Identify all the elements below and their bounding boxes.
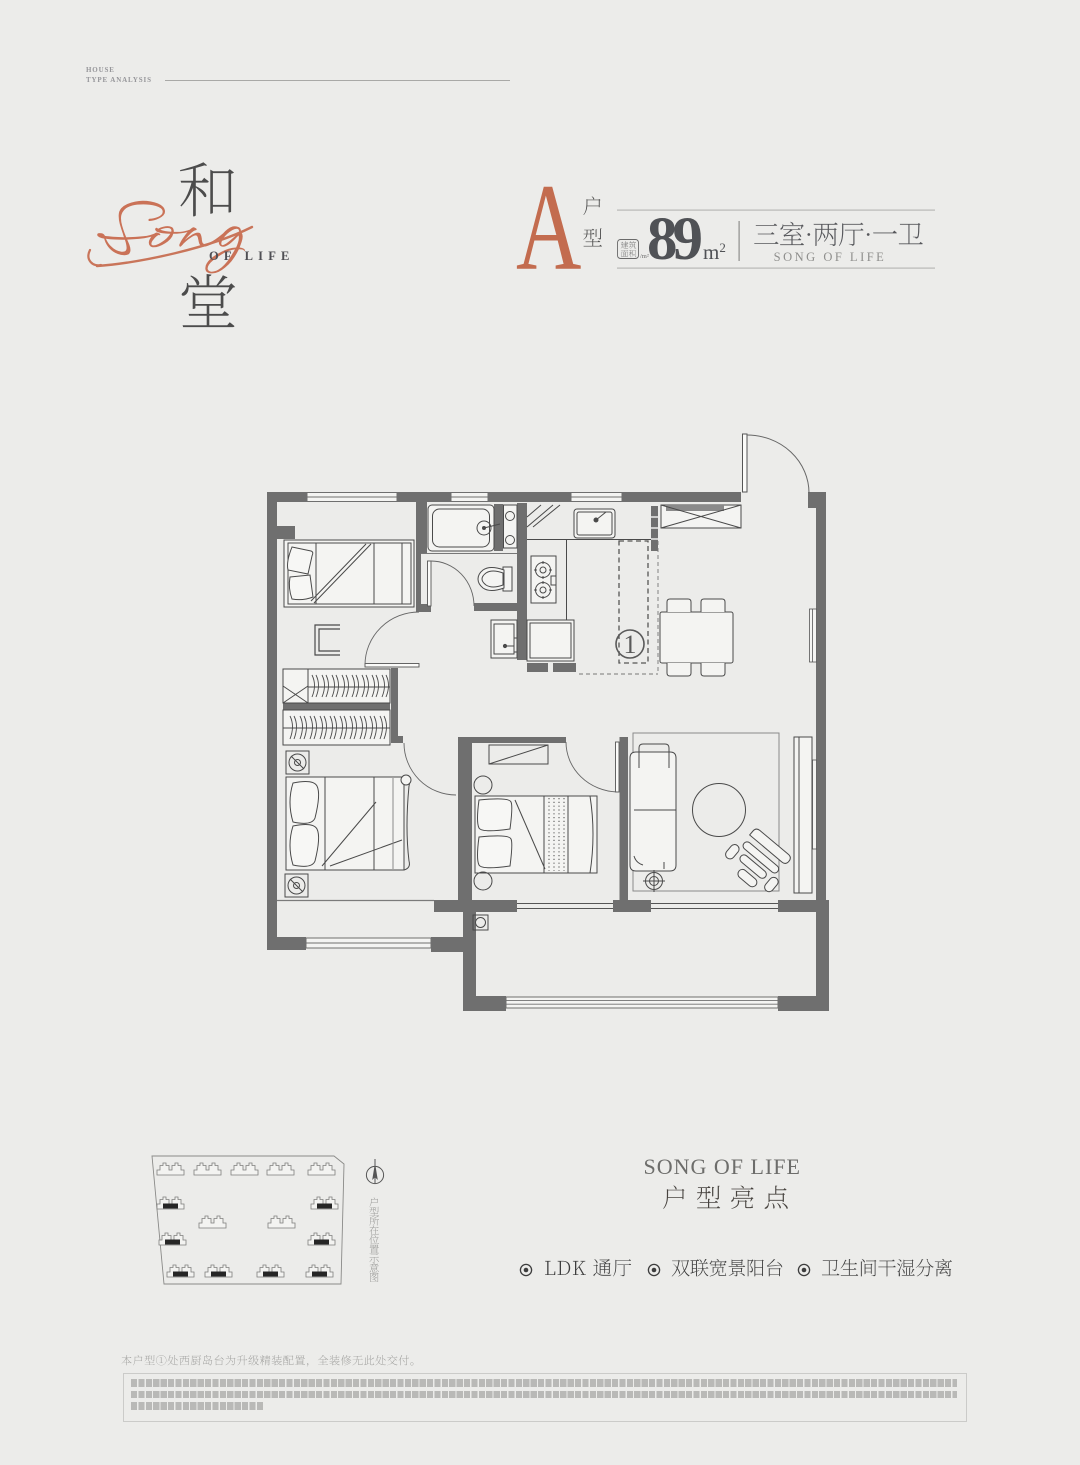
svg-text:89: 89 [647, 206, 703, 273]
svg-text:SONG OF LIFE: SONG OF LIFE [774, 250, 887, 264]
svg-text:m2: m2 [703, 240, 726, 264]
svg-text:1: 1 [624, 630, 637, 659]
svg-text:SONG OF LIFE: SONG OF LIFE [644, 1154, 805, 1179]
